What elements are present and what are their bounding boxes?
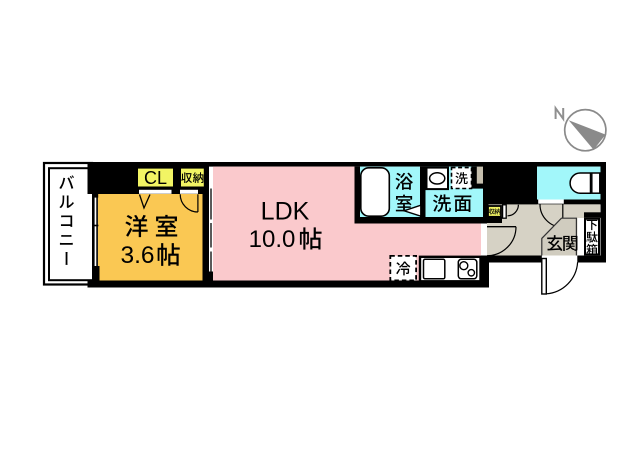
svg-text:CL: CL	[144, 168, 167, 188]
svg-text:10.0: 10.0	[249, 226, 296, 253]
svg-text:3.6: 3.6	[120, 242, 154, 269]
svg-text:LDK: LDK	[261, 198, 310, 226]
